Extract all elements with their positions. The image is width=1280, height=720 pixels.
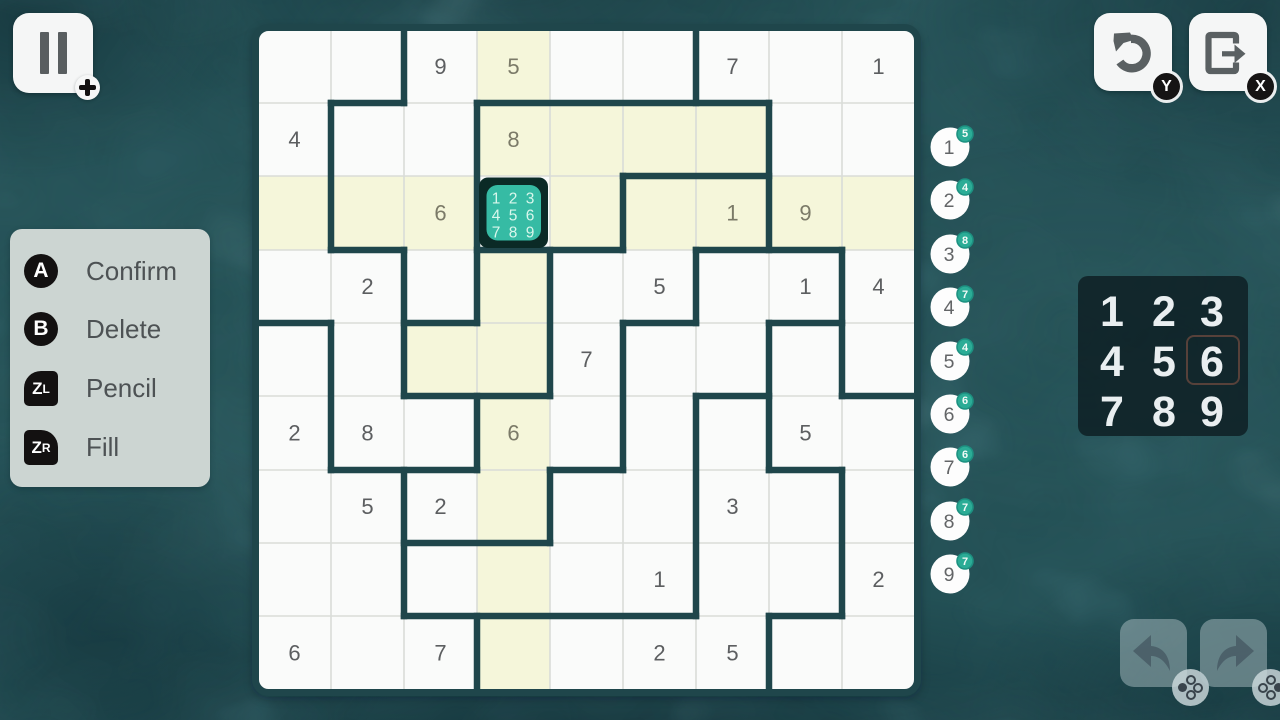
svg-text:7: 7: [944, 457, 955, 479]
svg-text:9: 9: [526, 225, 535, 242]
svg-text:2: 2: [944, 190, 955, 212]
svg-text:5: 5: [799, 421, 811, 446]
svg-text:7: 7: [726, 54, 738, 79]
svg-text:5: 5: [507, 54, 519, 79]
svg-text:7: 7: [434, 641, 446, 666]
svg-text:5: 5: [944, 351, 955, 373]
svg-text:2: 2: [288, 421, 300, 446]
svg-text:8: 8: [507, 127, 519, 152]
svg-text:5: 5: [962, 128, 968, 140]
svg-text:9: 9: [434, 54, 446, 79]
svg-text:7: 7: [580, 347, 592, 372]
svg-text:1: 1: [872, 54, 884, 79]
svg-text:8: 8: [962, 235, 968, 247]
svg-text:6: 6: [507, 421, 519, 446]
svg-text:3: 3: [944, 244, 955, 266]
svg-text:1: 1: [799, 274, 811, 299]
svg-text:9: 9: [799, 201, 811, 226]
svg-text:4: 4: [962, 182, 969, 194]
svg-text:7: 7: [962, 556, 968, 568]
svg-text:4: 4: [944, 297, 955, 319]
svg-text:2: 2: [653, 641, 665, 666]
svg-text:5: 5: [509, 208, 518, 225]
svg-text:6: 6: [962, 449, 968, 461]
svg-text:7: 7: [962, 502, 968, 514]
svg-text:6: 6: [944, 404, 955, 426]
svg-text:3: 3: [726, 494, 738, 519]
svg-text:2: 2: [872, 567, 884, 592]
svg-text:5: 5: [726, 641, 738, 666]
svg-text:2: 2: [509, 191, 518, 208]
svg-text:4: 4: [492, 208, 501, 225]
svg-text:7: 7: [962, 289, 968, 301]
svg-text:5: 5: [653, 274, 665, 299]
svg-text:4: 4: [288, 127, 300, 152]
svg-text:6: 6: [288, 641, 300, 666]
svg-text:1: 1: [492, 191, 501, 208]
svg-text:8: 8: [944, 511, 955, 533]
svg-text:1: 1: [944, 137, 955, 159]
svg-text:6: 6: [434, 201, 446, 226]
svg-text:4: 4: [962, 342, 969, 354]
svg-text:5: 5: [361, 494, 373, 519]
svg-text:2: 2: [434, 494, 446, 519]
svg-text:1: 1: [653, 567, 665, 592]
svg-text:1: 1: [726, 201, 738, 226]
svg-text:3: 3: [526, 191, 535, 208]
svg-text:7: 7: [492, 225, 501, 242]
svg-text:6: 6: [962, 395, 968, 407]
svg-text:4: 4: [872, 274, 884, 299]
svg-text:8: 8: [509, 225, 518, 242]
svg-text:2: 2: [361, 274, 373, 299]
svg-text:9: 9: [944, 564, 955, 586]
svg-text:6: 6: [526, 208, 535, 225]
svg-text:8: 8: [361, 421, 373, 446]
